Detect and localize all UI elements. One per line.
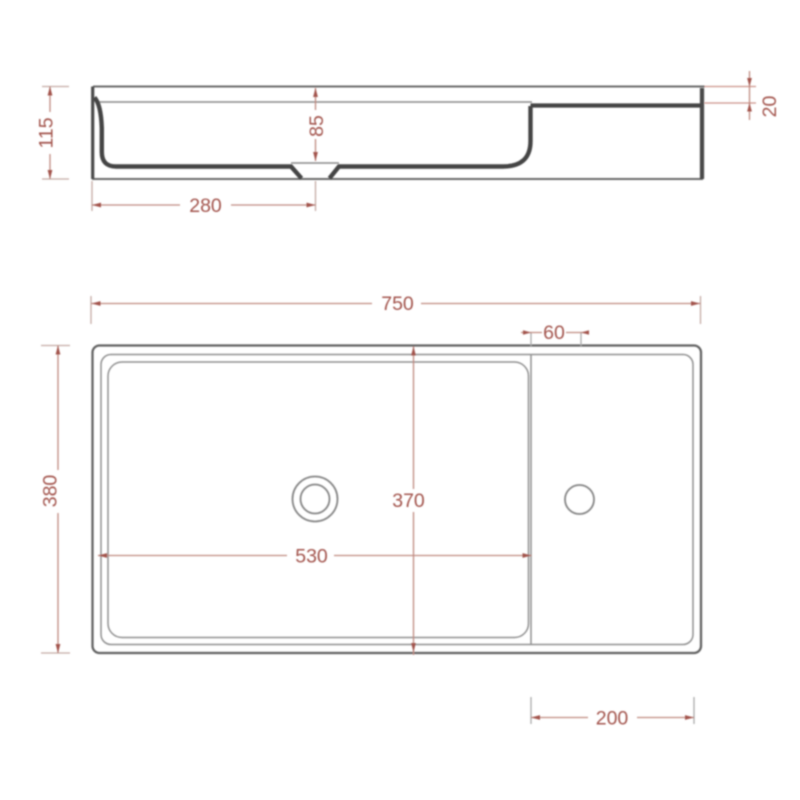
- svg-text:200: 200: [596, 708, 629, 730]
- svg-text:115: 115: [36, 117, 58, 148]
- svg-text:20: 20: [759, 96, 781, 118]
- svg-text:530: 530: [295, 546, 328, 568]
- svg-text:280: 280: [189, 195, 222, 217]
- svg-text:85: 85: [306, 115, 328, 137]
- svg-text:370: 370: [392, 490, 425, 512]
- svg-text:60: 60: [543, 322, 565, 344]
- svg-text:750: 750: [381, 293, 414, 315]
- svg-text:380: 380: [40, 475, 62, 508]
